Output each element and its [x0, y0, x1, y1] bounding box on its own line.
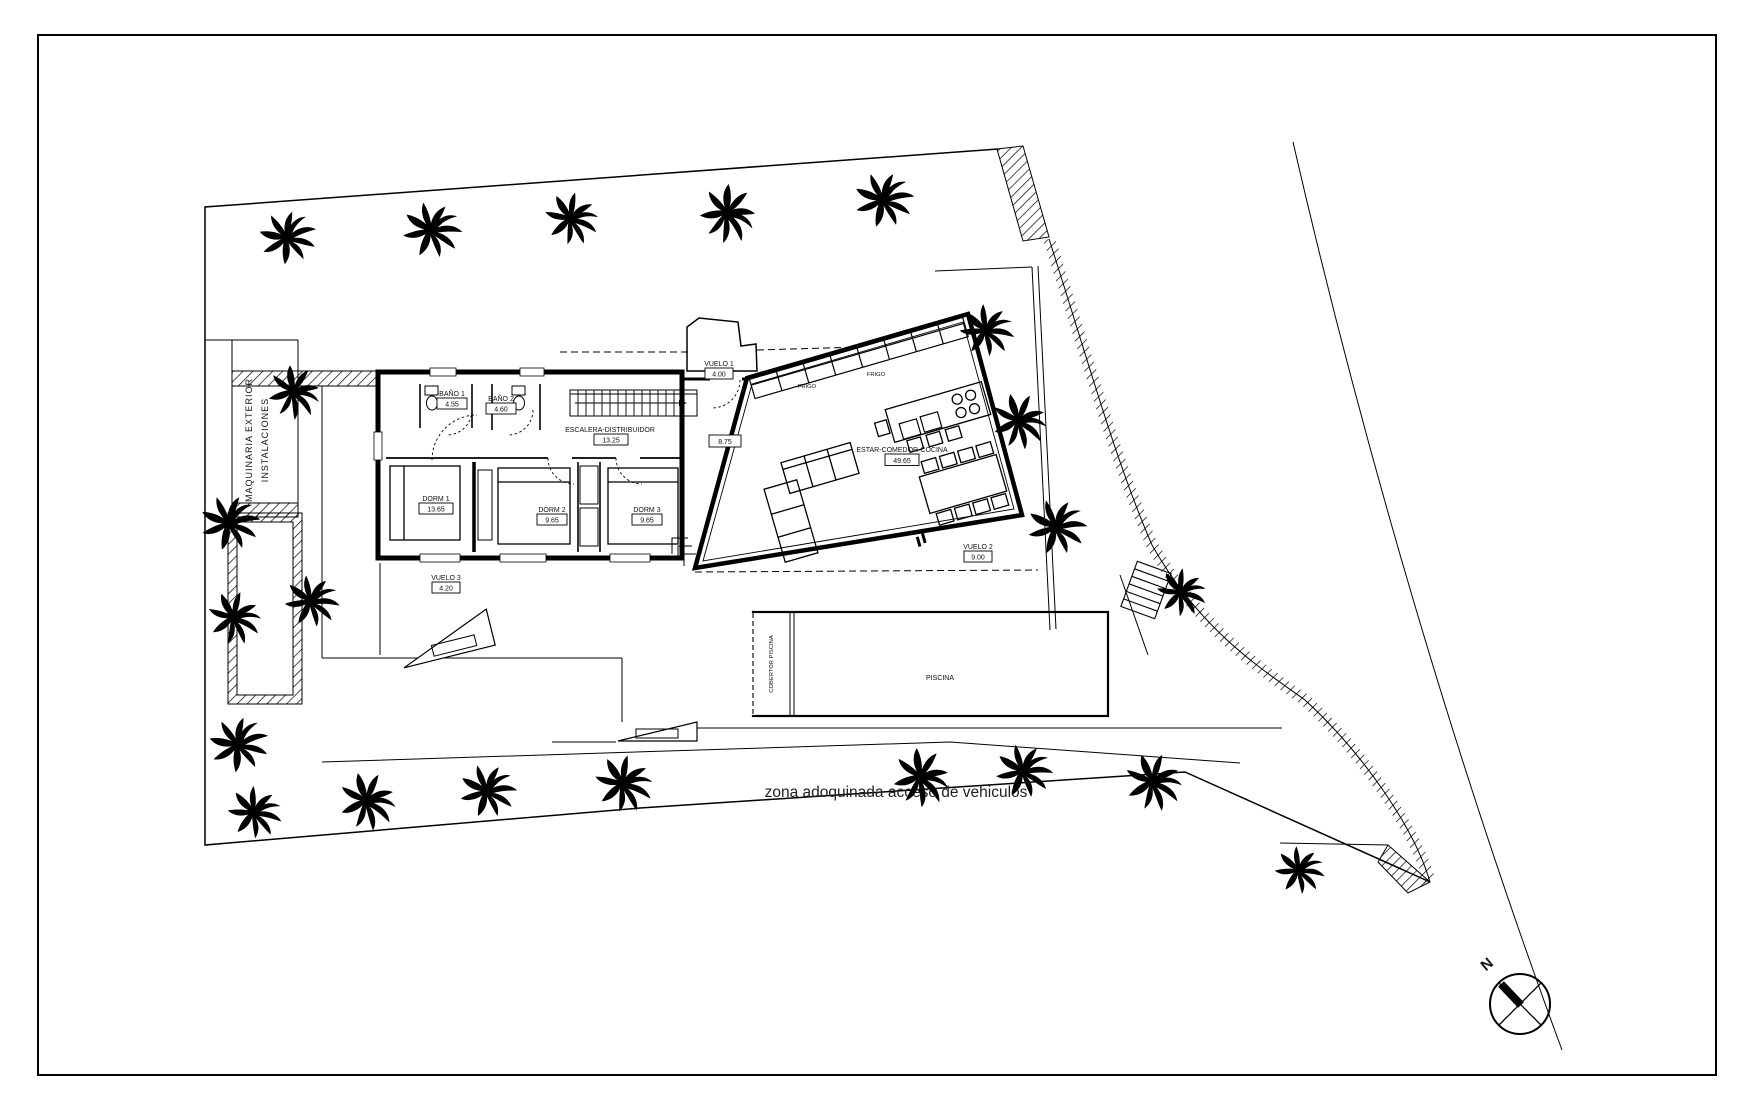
hall-area: 8.75 [718, 439, 732, 446]
escalera-label: ESCALERA-DISTRIBUIDOR [565, 427, 655, 434]
bedroom-wing-walls [378, 372, 682, 558]
estar-area: 49.65 [893, 458, 911, 465]
fridge-label-1: FRIGO [798, 384, 817, 390]
vuelo1-area: 4.00 [712, 372, 726, 379]
vuelo3-area: 4.20 [439, 586, 453, 593]
dorm1-label: DORM 1 [422, 496, 449, 503]
bano1-label: BAÑO 1 [439, 389, 465, 398]
pool-label: PISCINA [926, 675, 954, 682]
machinery-label-line2: INSTALACIONES [260, 398, 270, 482]
floor-plan-sheet: MAQUINARIA EXTERIOR INSTALACIONES [0, 0, 1754, 1112]
bano1-area: 4.55 [445, 402, 459, 409]
machinery-label-line1: MAQUINARIA EXTERIOR [244, 378, 254, 502]
dorm1-area: 13.65 [427, 507, 445, 514]
dorm2-label: DORM 2 [538, 507, 565, 514]
pool: COBERTOR PISCINA PISCINA [753, 612, 1108, 716]
vuelo2-area: 9.00 [971, 555, 985, 562]
fridge-label-2: FRIGO [867, 372, 886, 378]
escalera-area: 13.25 [602, 438, 620, 445]
paved-zone-label: zona adoquinada acceso de vehiculos [765, 784, 1028, 801]
bano2-area: 4.60 [494, 407, 508, 414]
vuelo2-label: VUELO 2 [963, 544, 993, 551]
vuelo1-label: VUELO 1 [704, 361, 734, 368]
vuelo3-label: VUELO 3 [431, 575, 461, 582]
pool-cover-label: COBERTOR PISCINA [769, 635, 775, 693]
bano2-label: BAÑO 2 [488, 394, 514, 403]
site-plan-drawing: MAQUINARIA EXTERIOR INSTALACIONES [0, 0, 1754, 1112]
dorm2-area: 9.65 [545, 518, 559, 525]
estar-label: ESTAR-COMEDOR-COCINA [856, 447, 948, 454]
dorm3-label: DORM 3 [633, 507, 660, 514]
dorm3-area: 9.65 [640, 518, 654, 525]
